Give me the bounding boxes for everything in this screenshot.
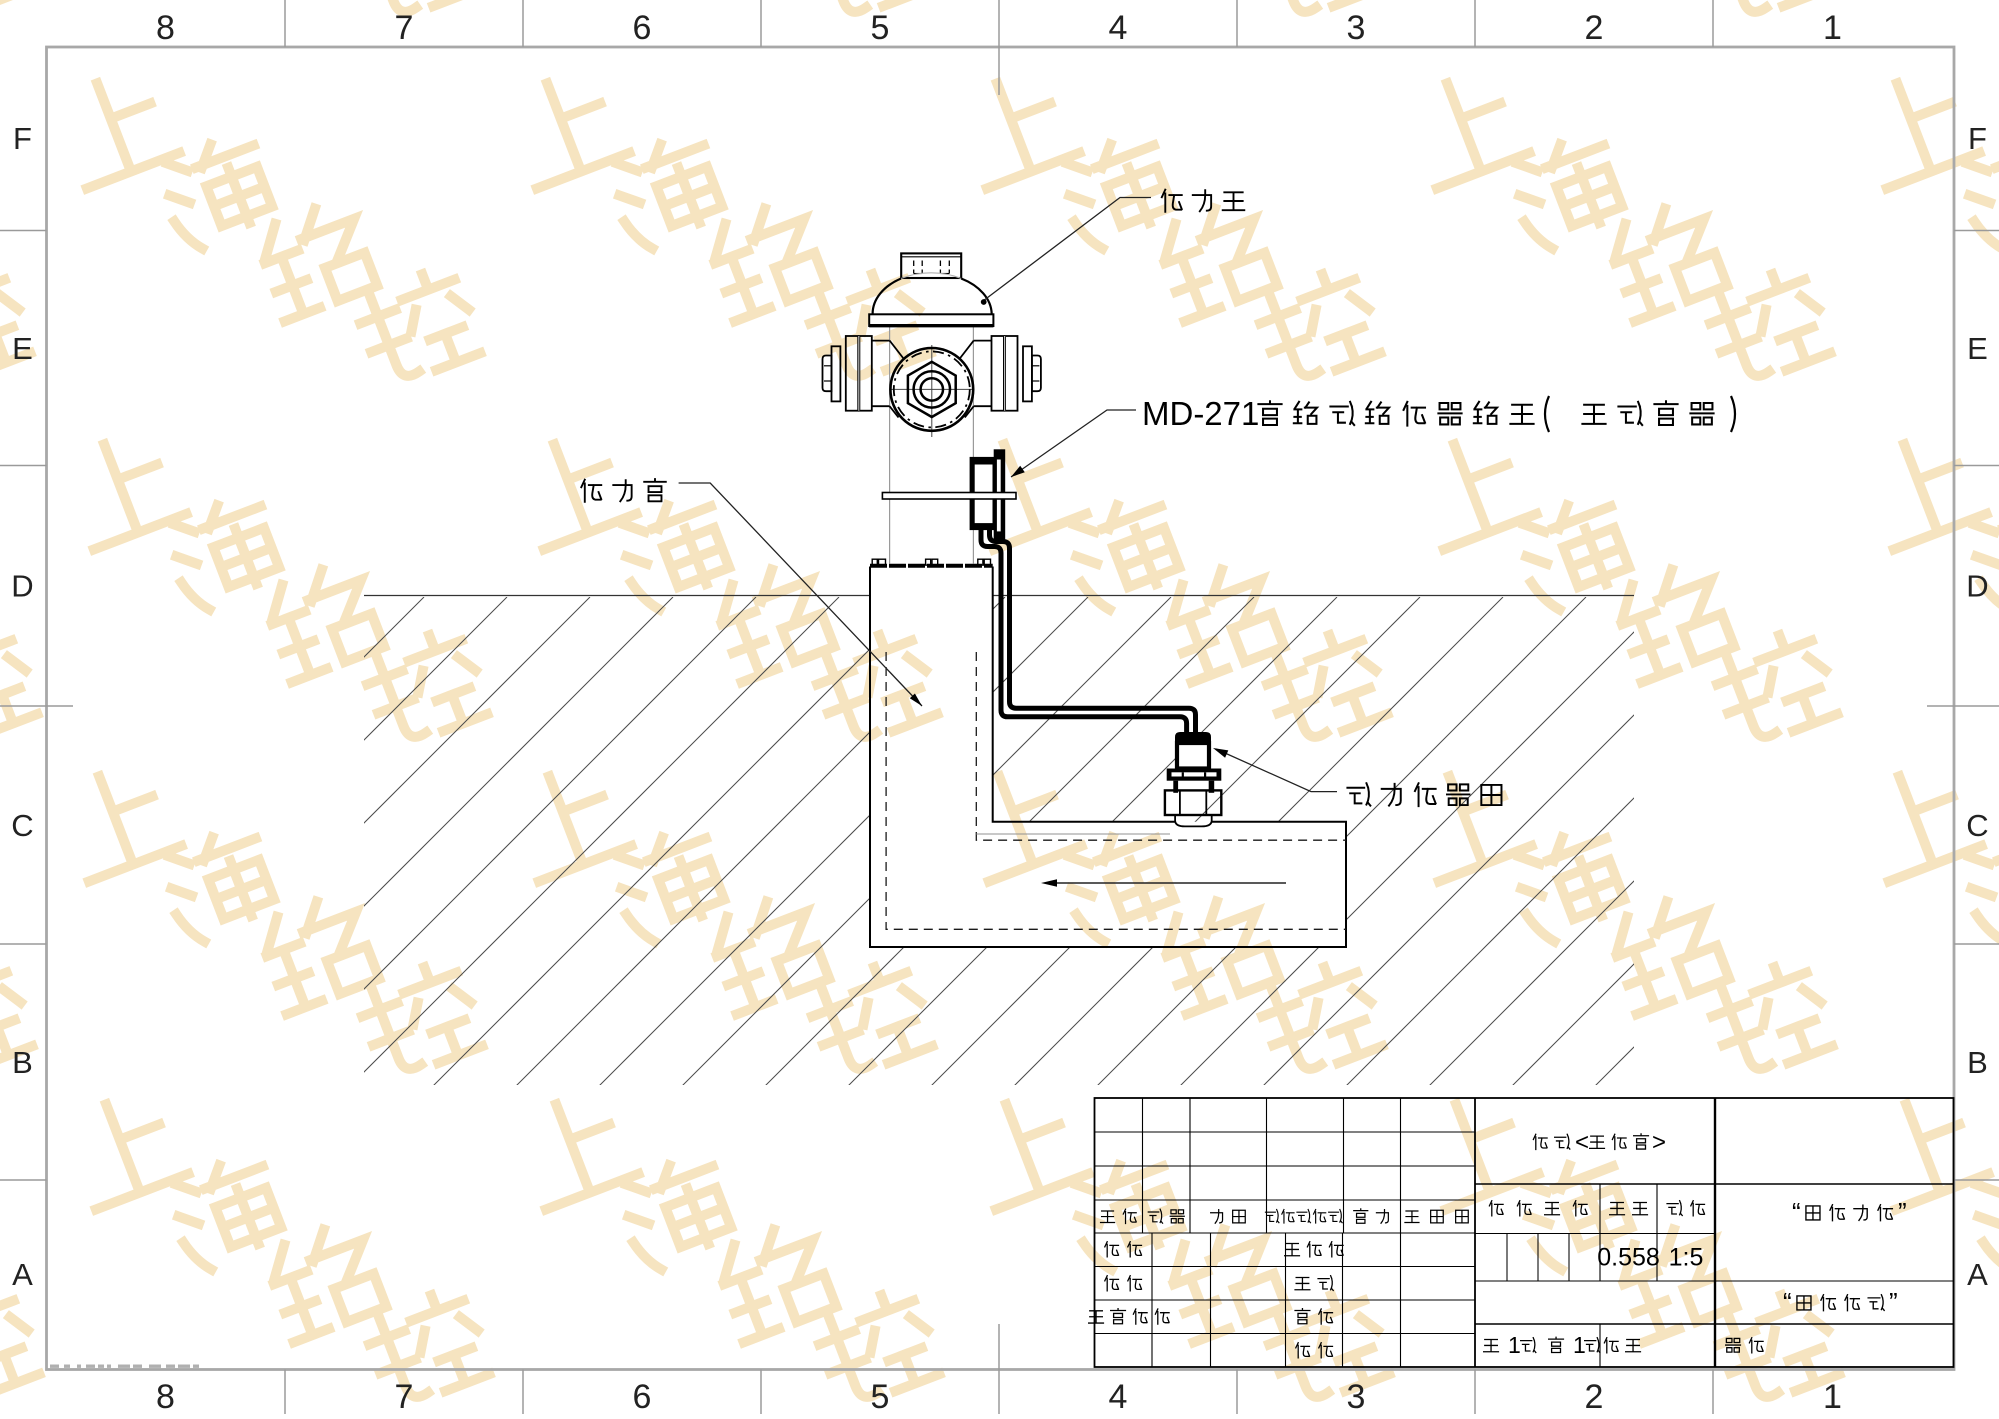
svg-text:5: 5	[871, 9, 890, 47]
svg-text:B: B	[1967, 1045, 1988, 1080]
svg-text:“: “	[1783, 1287, 1792, 1317]
svg-text:8: 8	[156, 1378, 175, 1414]
svg-text:2: 2	[1585, 1378, 1604, 1414]
svg-text:C: C	[1966, 808, 1988, 843]
svg-text:0.558: 0.558	[1597, 1244, 1660, 1272]
svg-text:6: 6	[633, 9, 652, 47]
svg-text:”: ”	[1889, 1287, 1898, 1317]
svg-text:1: 1	[1573, 1332, 1586, 1358]
svg-text:5: 5	[871, 1378, 890, 1414]
svg-text:C: C	[11, 808, 33, 843]
svg-text:F: F	[13, 121, 32, 156]
svg-text:D: D	[1966, 569, 1988, 604]
svg-text:“: “	[1792, 1197, 1801, 1227]
svg-text:B: B	[12, 1045, 33, 1080]
svg-text:MD-271: MD-271	[1142, 395, 1259, 432]
svg-text:1:5: 1:5	[1669, 1244, 1704, 1272]
svg-text:7: 7	[395, 9, 414, 47]
svg-text:2: 2	[1585, 9, 1604, 47]
svg-text:8: 8	[156, 9, 175, 47]
svg-text:1: 1	[1823, 9, 1842, 47]
svg-text:”: ”	[1898, 1197, 1907, 1227]
svg-text:F: F	[1968, 121, 1987, 156]
svg-text:<: <	[1575, 1129, 1589, 1156]
svg-text:3: 3	[1347, 1378, 1366, 1414]
svg-text:D: D	[11, 569, 33, 604]
svg-text:7: 7	[395, 1378, 414, 1414]
svg-text:E: E	[1967, 331, 1988, 366]
svg-text:1: 1	[1823, 1378, 1842, 1414]
svg-text:6: 6	[633, 1378, 652, 1414]
svg-text:1: 1	[1508, 1332, 1521, 1358]
svg-text:>: >	[1652, 1129, 1666, 1156]
svg-text:A: A	[1967, 1257, 1988, 1292]
svg-text:A: A	[12, 1257, 33, 1292]
svg-text:4: 4	[1109, 1378, 1128, 1414]
svg-text:E: E	[12, 331, 33, 366]
svg-text:4: 4	[1109, 9, 1128, 47]
svg-text:3: 3	[1347, 9, 1366, 47]
